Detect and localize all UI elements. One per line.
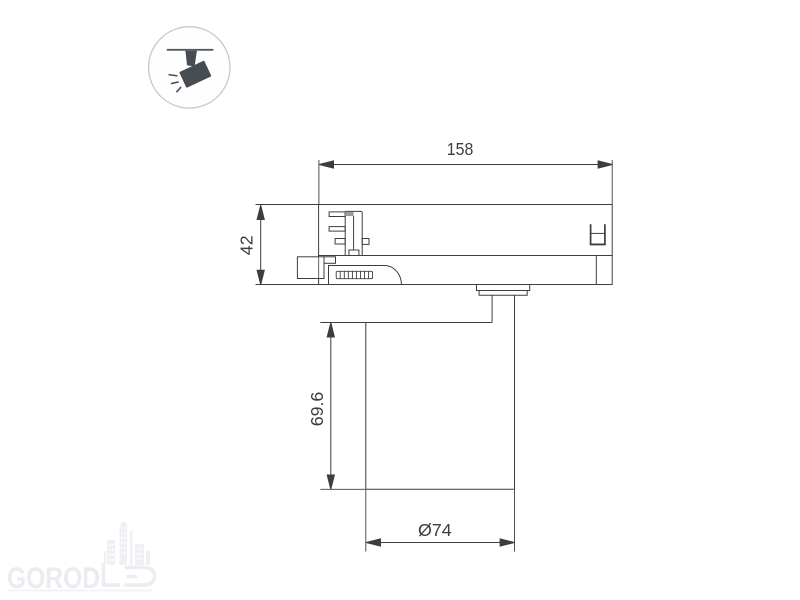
svg-text:69.6: 69.6 [307, 392, 327, 427]
svg-text:158: 158 [447, 139, 474, 159]
svg-text:42: 42 [236, 235, 256, 255]
svg-text:Ø74: Ø74 [418, 520, 452, 540]
